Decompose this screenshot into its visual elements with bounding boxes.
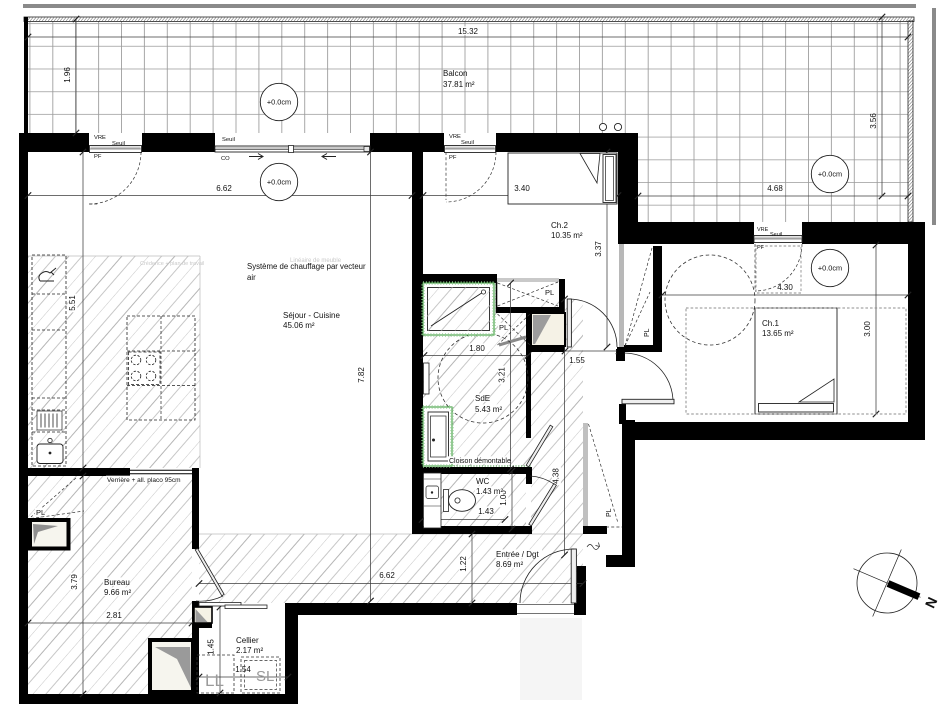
- svg-text:Crédence + plan de travail: Crédence + plan de travail: [140, 261, 204, 267]
- svg-text:Verrière + all. placo 95cm: Verrière + all. placo 95cm: [107, 477, 181, 484]
- svg-text:Linéaire de meuble: Linéaire de meuble: [290, 258, 342, 264]
- svg-text:WC: WC: [476, 477, 490, 486]
- svg-text:3.40: 3.40: [514, 184, 530, 193]
- svg-text:1.54: 1.54: [235, 665, 251, 674]
- svg-text:SL: SL: [256, 668, 274, 685]
- svg-text:PL: PL: [545, 288, 554, 297]
- svg-text:7.82: 7.82: [357, 367, 366, 383]
- svg-text:+0.0cm: +0.0cm: [818, 264, 842, 273]
- svg-text:PF: PF: [94, 154, 102, 160]
- svg-text:1.43: 1.43: [478, 507, 494, 516]
- svg-text:4.30: 4.30: [777, 283, 793, 292]
- svg-text:Cellier: Cellier: [236, 636, 259, 645]
- svg-text:PL: PL: [644, 328, 651, 337]
- svg-text:1.96: 1.96: [63, 67, 72, 83]
- svg-text:VRE: VRE: [757, 227, 769, 233]
- svg-text:8.69 m²: 8.69 m²: [496, 560, 523, 569]
- svg-text:15.32: 15.32: [458, 27, 479, 36]
- svg-text:4.38: 4.38: [552, 468, 561, 484]
- svg-text:air: air: [247, 273, 256, 282]
- svg-text:Séjour - Cuisine: Séjour - Cuisine: [283, 311, 340, 320]
- svg-text:Bureau: Bureau: [104, 578, 130, 587]
- svg-text:PL: PL: [499, 323, 508, 332]
- svg-text:PL: PL: [36, 508, 45, 517]
- svg-text:2.17 m²: 2.17 m²: [236, 646, 263, 655]
- svg-text:1.55: 1.55: [569, 356, 585, 365]
- svg-text:9.66 m²: 9.66 m²: [104, 588, 131, 597]
- svg-text:VRE: VRE: [94, 135, 106, 141]
- svg-text:6.62: 6.62: [216, 184, 232, 193]
- svg-text:Seuil: Seuil: [770, 232, 782, 238]
- svg-text:4.68: 4.68: [767, 184, 783, 193]
- svg-text:1.43 m²: 1.43 m²: [476, 487, 503, 496]
- svg-text:PL: PL: [606, 508, 613, 517]
- svg-text:37.81 m²: 37.81 m²: [443, 80, 475, 89]
- svg-text:3.37: 3.37: [594, 241, 603, 257]
- svg-text:3.79: 3.79: [70, 574, 79, 590]
- svg-text:Ch.2: Ch.2: [551, 221, 568, 230]
- svg-text:13.65 m²: 13.65 m²: [762, 329, 794, 338]
- svg-text:+0.0cm: +0.0cm: [267, 178, 291, 187]
- svg-text:1.45: 1.45: [207, 639, 216, 655]
- svg-text:Ch.1: Ch.1: [762, 319, 779, 328]
- svg-text:Cloison démontable: Cloison démontable: [449, 458, 511, 465]
- svg-text:PF: PF: [449, 155, 457, 161]
- svg-text:Seuil: Seuil: [222, 137, 235, 143]
- svg-text:10.35 m²: 10.35 m²: [551, 231, 583, 240]
- svg-text:2.81: 2.81: [106, 611, 122, 620]
- svg-text:45.06 m²: 45.06 m²: [283, 321, 315, 330]
- svg-text:LL: LL: [205, 671, 224, 690]
- svg-text:5.43 m²: 5.43 m²: [475, 405, 502, 414]
- svg-text:SdE: SdE: [475, 394, 490, 403]
- svg-text:3.56: 3.56: [869, 113, 878, 129]
- svg-text:3.21: 3.21: [498, 367, 507, 383]
- svg-text:+0.0cm: +0.0cm: [818, 170, 842, 179]
- svg-text:Seuil: Seuil: [461, 140, 474, 146]
- svg-text:VRE: VRE: [449, 134, 461, 140]
- svg-text:+0.0cm: +0.0cm: [267, 98, 291, 107]
- svg-text:Seuil: Seuil: [112, 141, 125, 147]
- svg-text:1.22: 1.22: [459, 556, 468, 572]
- svg-text:3.00: 3.00: [863, 321, 872, 337]
- svg-text:Entrée / Dgt: Entrée / Dgt: [496, 550, 539, 559]
- svg-text:Balcon: Balcon: [443, 69, 467, 78]
- svg-text:CO: CO: [221, 156, 230, 162]
- svg-text:5.51: 5.51: [68, 295, 77, 311]
- svg-text:1.80: 1.80: [469, 344, 485, 353]
- svg-text:6.62: 6.62: [379, 571, 395, 580]
